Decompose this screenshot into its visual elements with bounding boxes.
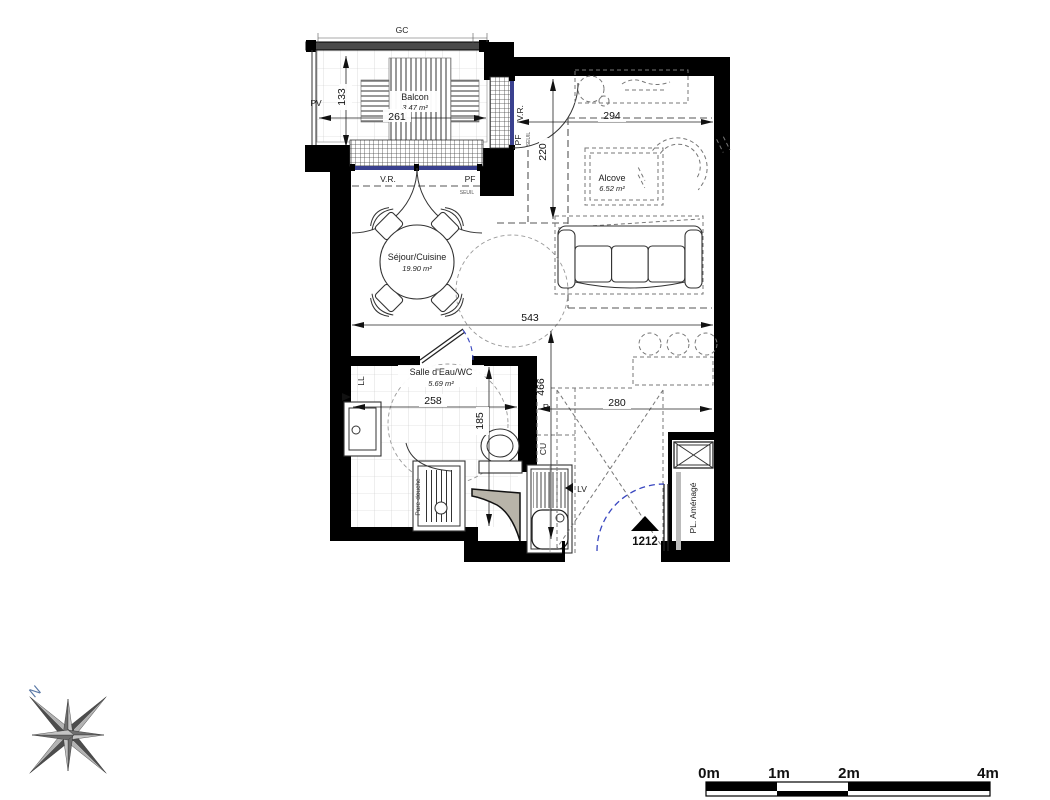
closet-label: PL. Aménagé xyxy=(688,482,698,533)
dim-entrance-width-text: 280 xyxy=(608,397,626,409)
scale-0m: 0m xyxy=(698,765,720,782)
cooktop-label: CU xyxy=(538,443,548,455)
shower-screen-label: Pare-douche xyxy=(415,478,422,516)
dim-alcove-width-text: 294 xyxy=(603,110,621,122)
dishwasher-label: LV xyxy=(577,484,587,494)
vanity-sink xyxy=(342,393,381,456)
alcove-area: 6.52 m² xyxy=(599,184,625,193)
vr-main-label: V.R. xyxy=(380,174,396,184)
dim-bathroom-depth-text: 185 xyxy=(474,412,486,430)
drainboard xyxy=(533,472,566,508)
bathroom-name: Salle d'Eau/WC xyxy=(410,367,473,377)
dim-gc-label: GC xyxy=(396,25,409,35)
dim-bathroom-width-text: 258 xyxy=(424,395,442,407)
balcony-name: Balcon xyxy=(401,92,429,102)
floor-plan: Balcon 3.47 m² GC PV 133 261 xyxy=(0,0,1050,800)
scale-1m: 1m xyxy=(768,765,790,782)
closet-door-edge xyxy=(676,472,681,550)
vr-side-label: V.R. xyxy=(515,105,525,121)
dim-kitchen-strip-text: 466 xyxy=(535,378,547,396)
seuil-main-label: SEUIL xyxy=(460,190,475,196)
dim-balcony-width-text: 261 xyxy=(388,111,406,123)
washing-machine-label: LL xyxy=(356,376,366,386)
dim-balcony-door-text: 220 xyxy=(537,143,549,161)
living-name: Séjour/Cuisine xyxy=(388,252,447,262)
pf-side-label: PF xyxy=(513,135,523,146)
scale-2m: 2m xyxy=(838,765,860,782)
toilet xyxy=(479,429,522,473)
seuil-side-label: SEUIL xyxy=(526,132,532,147)
sofa xyxy=(555,216,703,294)
unit-number: 1212 xyxy=(632,536,658,548)
pf-main-label: PF xyxy=(465,174,476,184)
alcove-name: Alcove xyxy=(598,173,625,183)
dim-balcony-depth-text: 133 xyxy=(336,88,348,106)
living-area: 19.90 m² xyxy=(402,264,432,273)
kitchen-sink xyxy=(527,465,572,553)
balcony-railing xyxy=(306,42,488,50)
dim-living-width-text: 543 xyxy=(521,312,539,324)
pv-label: PV xyxy=(310,98,322,108)
bathroom-area: 5.69 m² xyxy=(428,379,454,388)
balcony: Balcon 3.47 m² xyxy=(306,40,489,148)
scale-4m: 4m xyxy=(977,765,999,782)
